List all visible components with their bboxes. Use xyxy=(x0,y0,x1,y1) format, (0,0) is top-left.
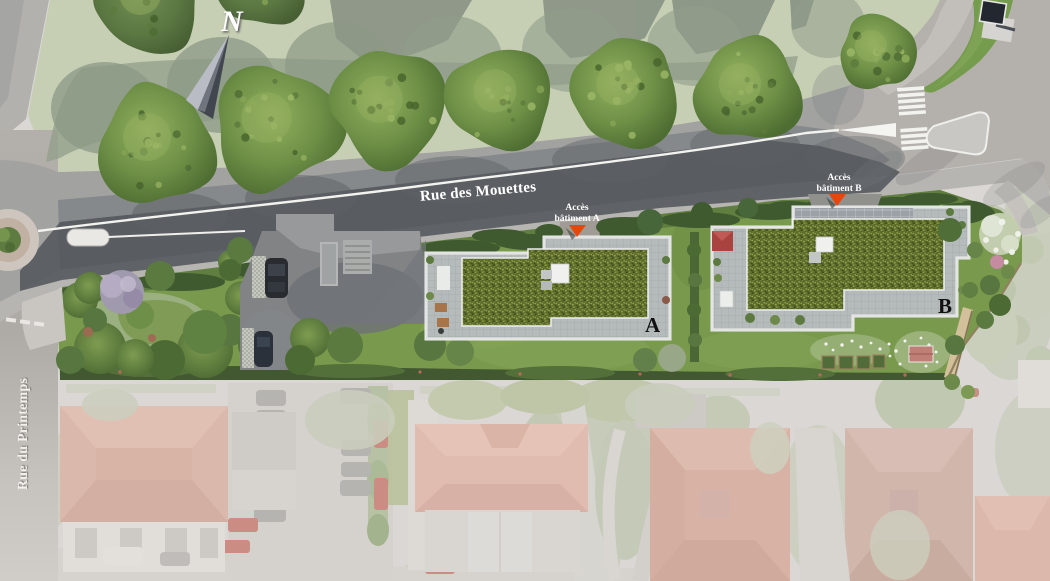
svg-text:B: B xyxy=(938,294,952,318)
svg-text:bâtiment B: bâtiment B xyxy=(816,184,862,194)
svg-text:A: A xyxy=(645,313,661,337)
svg-text:Rue du Printemps: Rue du Printemps xyxy=(16,378,31,490)
svg-text:bâtiment A: bâtiment A xyxy=(554,214,599,224)
svg-text:Accès: Accès xyxy=(565,203,589,213)
svg-text:N: N xyxy=(220,5,244,38)
svg-text:Accès: Accès xyxy=(827,173,851,183)
